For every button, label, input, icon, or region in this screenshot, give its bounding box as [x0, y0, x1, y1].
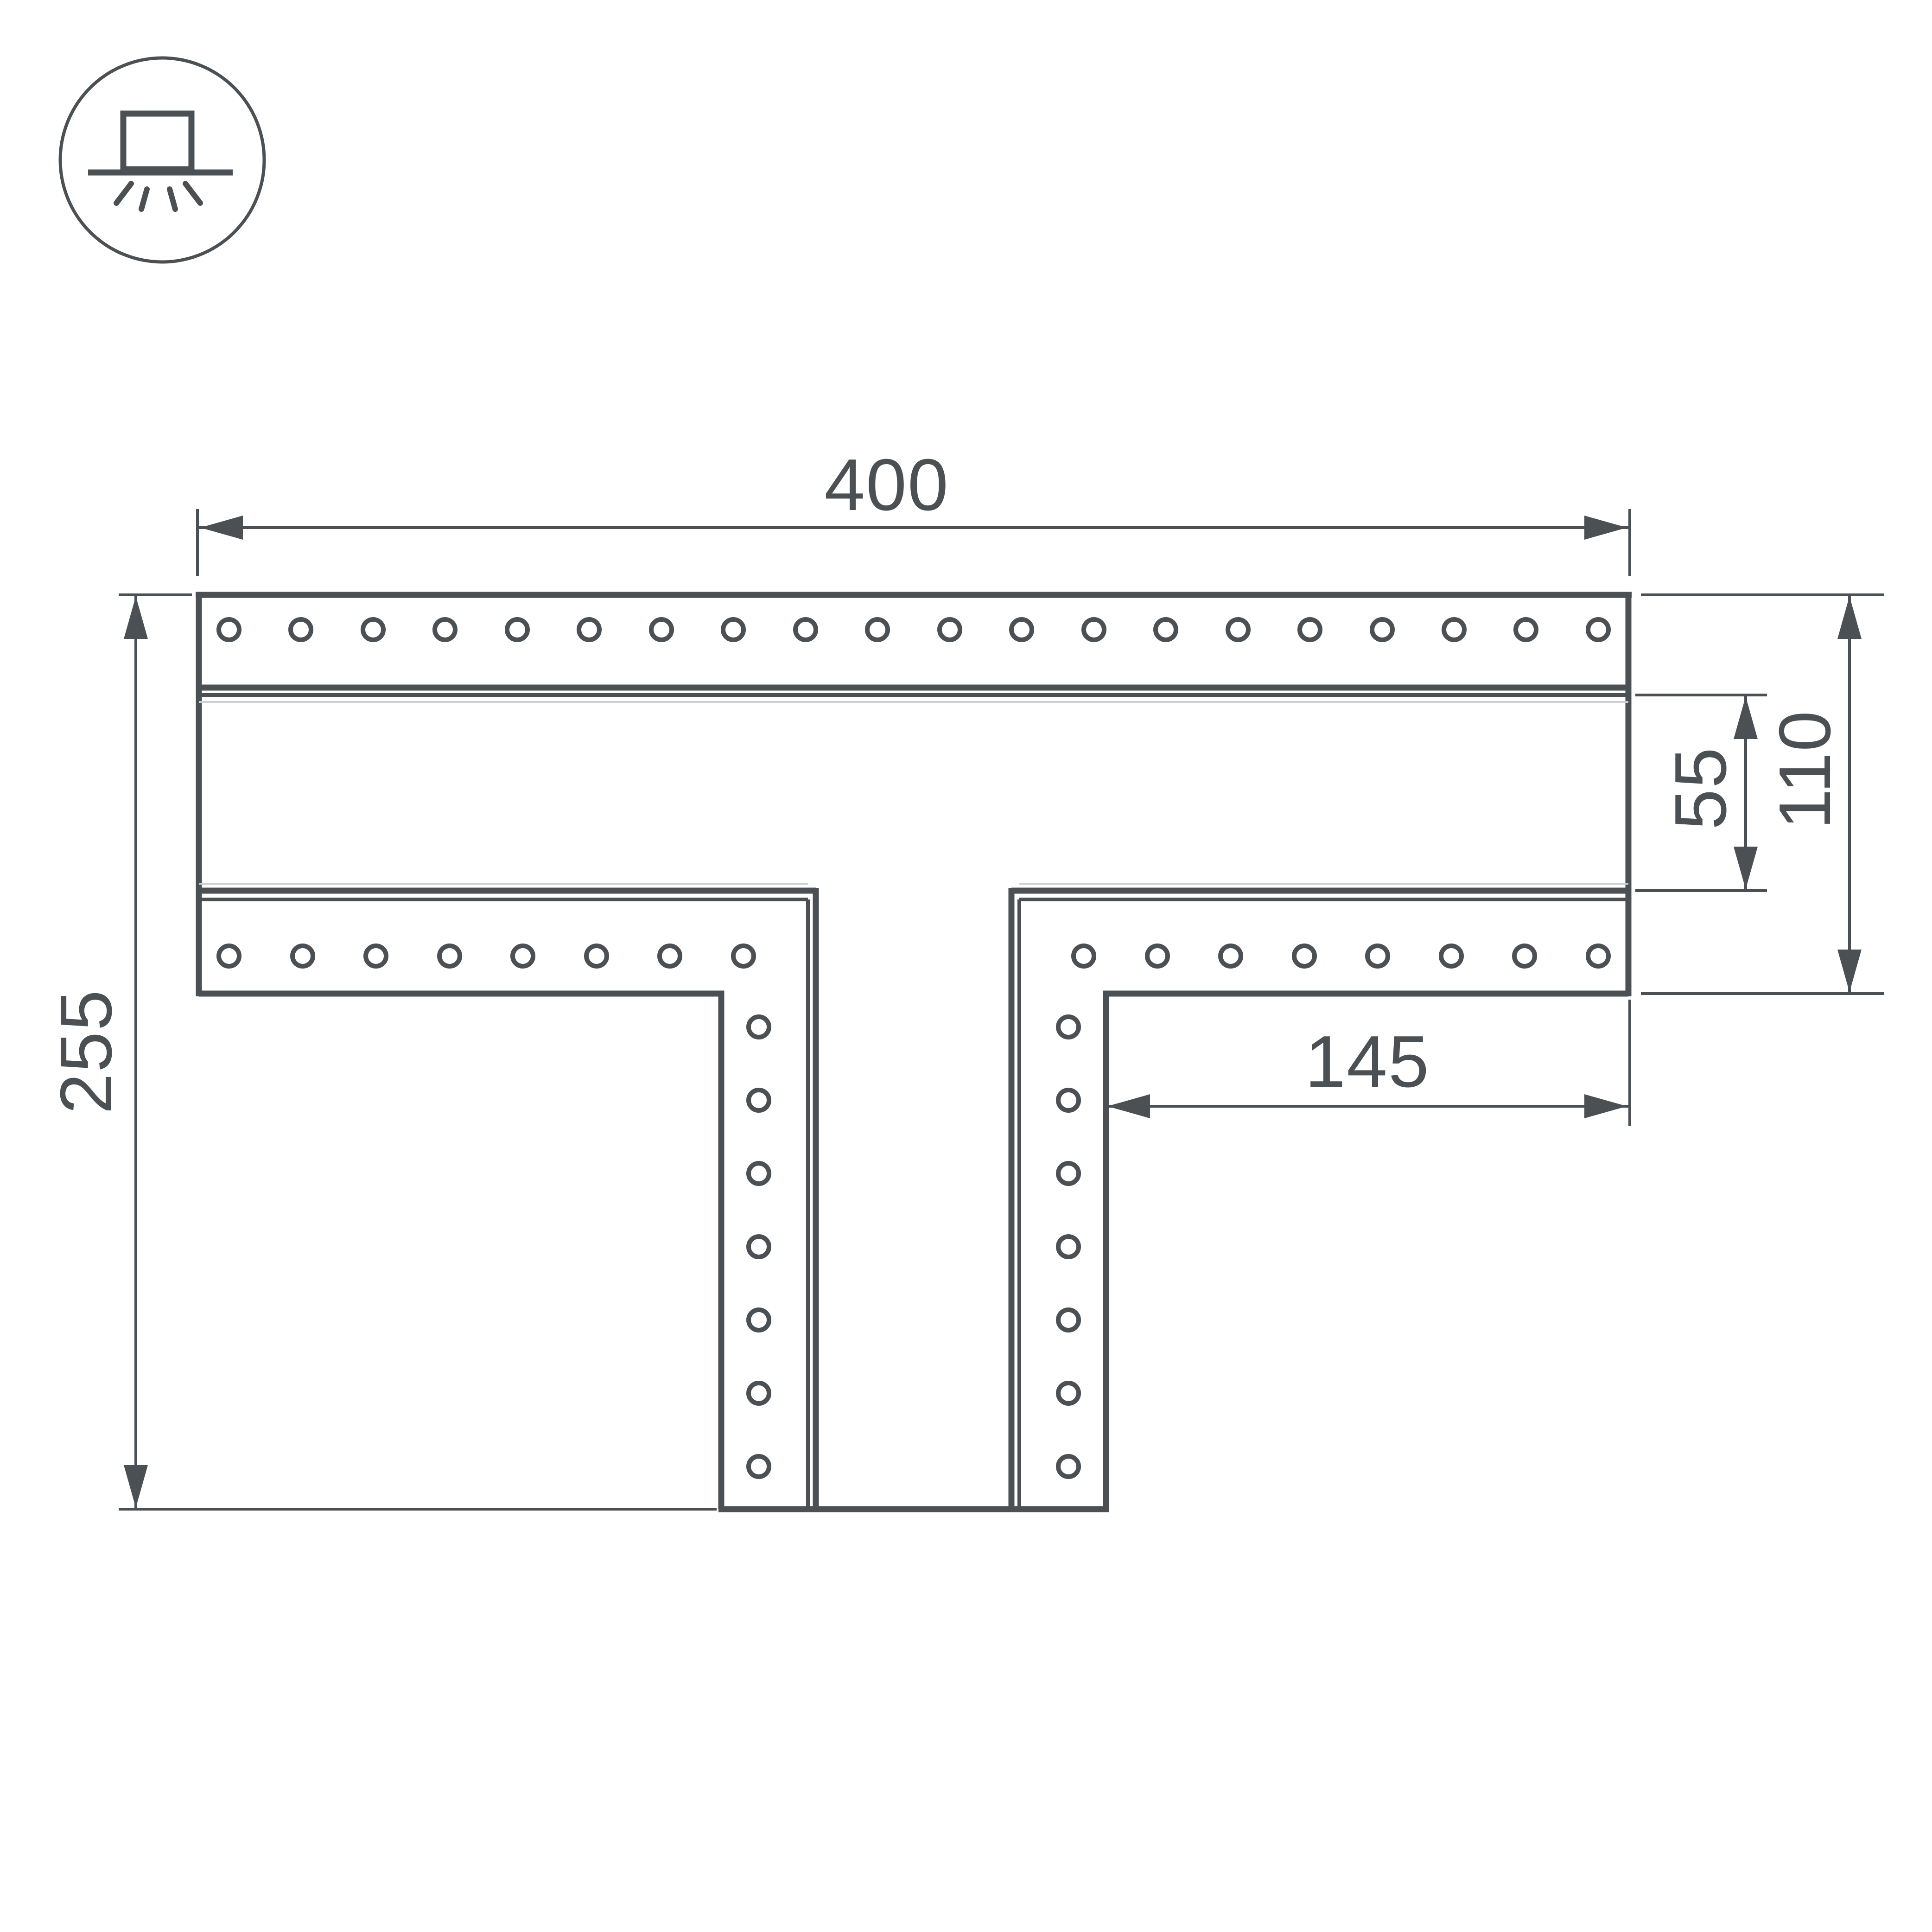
right-leg-hole	[1058, 1310, 1079, 1330]
left-flange-hole	[513, 946, 533, 966]
left-flange-hole	[219, 946, 239, 966]
top-row-hole	[867, 619, 888, 640]
icon-circle	[60, 58, 264, 262]
top-row-hole	[651, 619, 672, 640]
drawing-canvas: 400 255 110 55 145	[0, 0, 1932, 1932]
dim-label-channel-depth: 55	[1660, 746, 1741, 830]
left-leg-hole	[749, 1017, 769, 1037]
arrowhead-down-icon	[124, 1465, 148, 1508]
left-leg-hole	[749, 1237, 769, 1257]
left-flange-hole	[586, 946, 607, 966]
arrowhead-left-icon	[200, 516, 243, 540]
top-row-hole	[435, 619, 455, 640]
arrowhead-up-icon	[1734, 696, 1758, 739]
arrowhead-right-icon	[1584, 1094, 1627, 1118]
technical-drawing-page: 400 255 110 55 145	[0, 0, 1932, 1932]
left-flange-hole	[439, 946, 460, 966]
right-flange-hole	[1367, 946, 1388, 966]
arrowhead-up-icon	[1837, 596, 1862, 639]
right-flange-hole	[1514, 946, 1535, 966]
right-leg-hole	[1058, 1456, 1079, 1477]
top-row-hole	[1011, 619, 1032, 640]
left-leg-hole	[749, 1310, 769, 1330]
top-row-hole	[507, 619, 527, 640]
top-row-hole	[1300, 619, 1320, 640]
icon-fixture-box	[123, 114, 191, 169]
top-row-hole	[1228, 619, 1248, 640]
dimension-400: 400	[197, 444, 1630, 576]
right-flange-hole	[1220, 946, 1241, 966]
top-row-hole	[579, 619, 599, 640]
top-row-hole	[1372, 619, 1392, 640]
top-row-hole	[1588, 619, 1608, 640]
right-leg-hole	[1058, 1090, 1079, 1110]
left-flange-hole	[366, 946, 386, 966]
top-row-hole	[363, 619, 383, 640]
top-row-hole	[723, 619, 744, 640]
arrowhead-right-icon	[1584, 516, 1627, 540]
top-row-hole	[1516, 619, 1536, 640]
right-flange-hole	[1294, 946, 1315, 966]
left-leg-hole	[749, 1090, 769, 1110]
arrowhead-left-icon	[1107, 1094, 1150, 1118]
surface-mounted-light-icon	[60, 58, 264, 262]
left-leg-hole	[749, 1383, 769, 1403]
dimension-55: 55	[1635, 695, 1767, 891]
left-leg-hole	[749, 1456, 769, 1477]
arrowhead-down-icon	[1837, 950, 1862, 992]
top-row-hole	[1084, 619, 1104, 640]
top-row-hole	[291, 619, 311, 640]
top-row-hole	[795, 619, 816, 640]
right-leg-hole	[1058, 1383, 1079, 1403]
left-flange-hole	[733, 946, 754, 966]
dimension-255: 255	[45, 595, 717, 1509]
right-flange-hole	[1074, 946, 1094, 966]
arrowhead-up-icon	[124, 596, 148, 639]
top-row-hole	[219, 619, 239, 640]
right-flange-hole	[1441, 946, 1462, 966]
dim-label-width: 400	[824, 444, 949, 526]
right-flange-hole	[1588, 946, 1608, 966]
top-row-hole	[1444, 619, 1464, 640]
top-row-hole	[1156, 619, 1176, 640]
right-flange-hole	[1147, 946, 1168, 966]
left-flange-hole	[292, 946, 313, 966]
dim-label-total-height: 255	[45, 989, 127, 1114]
icon-light-rays	[116, 184, 200, 209]
left-leg-hole	[749, 1163, 769, 1184]
dim-label-leg-offset: 145	[1305, 1021, 1430, 1103]
left-flange-hole	[660, 946, 680, 966]
arrowhead-down-icon	[1734, 847, 1758, 889]
right-leg-hole	[1058, 1237, 1079, 1257]
top-row-hole	[940, 619, 960, 640]
right-leg-hole	[1058, 1163, 1079, 1184]
dimension-145: 145	[1106, 1000, 1630, 1126]
dim-label-flange-height: 110	[1764, 710, 1846, 829]
right-leg-hole	[1058, 1017, 1079, 1037]
